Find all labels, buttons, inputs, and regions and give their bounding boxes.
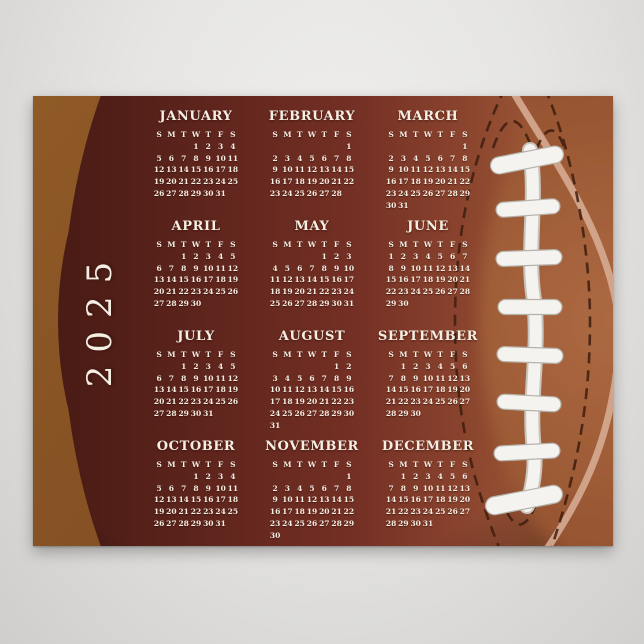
day-cell: 13 [153,384,165,396]
weekday-header: T [294,459,306,471]
day-cell: 26 [227,286,239,298]
day-cell: 3 [281,483,293,495]
day-cell: 29 [343,518,355,530]
weekday-header: T [202,239,214,251]
day-cell-empty [227,298,239,310]
day-cell-empty [459,518,471,530]
day-cell: 3 [397,153,409,165]
day-cell: 23 [397,286,409,298]
day-cell: 24 [422,506,434,518]
weekday-header: F [446,459,458,471]
day-cell: 3 [214,471,226,483]
day-cell: 2 [330,251,342,263]
weekday-header: T [434,349,446,361]
day-cell: 29 [385,298,397,310]
day-cell: 14 [385,494,397,506]
day-cell: 26 [422,188,434,200]
day-cell: 4 [434,361,446,373]
weekday-header: W [306,349,318,361]
weekday-header: T [434,129,446,141]
day-cell: 14 [330,494,342,506]
weekday-header: W [190,239,202,251]
weekday-header: W [422,459,434,471]
weekday-header: S [343,349,355,361]
day-cell: 10 [214,153,226,165]
lace-bar [496,249,562,266]
day-cell-empty [269,141,281,153]
day-cell: 1 [318,251,330,263]
day-cell: 15 [459,164,471,176]
day-cell-empty [434,141,446,153]
day-cell: 16 [202,494,214,506]
day-cell: 18 [294,176,306,188]
day-cell: 7 [178,483,190,495]
month-title: AUGUST [254,328,370,346]
month-day-grid: SMTWTFS123456789101112131415161718192021… [254,129,370,200]
day-cell-empty [459,200,471,212]
day-cell: 26 [446,396,458,408]
day-cell: 8 [318,263,330,275]
day-cell: 19 [422,176,434,188]
day-cell: 30 [397,298,409,310]
day-cell: 27 [294,298,306,310]
day-cell: 1 [459,141,471,153]
day-cell: 7 [330,483,342,495]
day-cell-empty [202,298,214,310]
month-day-grid: SMTWTFS123456789101112131415161718192021… [370,459,486,530]
day-cell-empty [434,200,446,212]
day-cell: 12 [227,263,239,275]
day-cell-empty [330,530,342,542]
day-cell: 7 [178,153,190,165]
day-cell: 5 [227,251,239,263]
weekday-header: S [227,349,239,361]
day-cell: 11 [214,263,226,275]
month-title: DECEMBER [370,438,486,456]
day-cell: 20 [318,176,330,188]
day-cell: 18 [214,384,226,396]
weekday-header: T [202,459,214,471]
day-cell: 13 [434,164,446,176]
day-cell: 31 [343,298,355,310]
day-cell: 25 [227,176,239,188]
day-cell: 30 [190,298,202,310]
day-cell: 17 [269,396,281,408]
day-cell-empty [446,298,458,310]
day-cell-empty [318,141,330,153]
day-cell: 4 [434,471,446,483]
day-cell-empty [306,251,318,263]
day-cell: 30 [202,188,214,200]
weekday-header: S [227,129,239,141]
day-cell: 12 [446,483,458,495]
day-cell: 13 [165,164,177,176]
day-cell: 9 [202,483,214,495]
month-block: OCTOBERSMTWTFS12345678910111213141516171… [138,434,254,544]
day-cell: 15 [178,274,190,286]
day-cell: 22 [330,396,342,408]
day-cell-empty [410,141,422,153]
day-cell: 20 [446,274,458,286]
day-cell: 1 [397,361,409,373]
day-cell-empty [294,530,306,542]
day-cell: 23 [330,286,342,298]
month-day-grid: SMTWTFS123456789101112131415161718192021… [138,129,254,200]
day-cell: 21 [446,176,458,188]
day-cell: 18 [269,286,281,298]
day-cell: 14 [385,384,397,396]
day-cell: 14 [330,164,342,176]
day-cell: 5 [306,153,318,165]
day-cell-empty [165,251,177,263]
day-cell: 15 [343,164,355,176]
weekday-header: M [165,129,177,141]
day-cell: 30 [410,518,422,530]
month-block: SEPTEMBERSMTWTFS123456789101112131415161… [370,324,486,434]
day-cell: 9 [190,373,202,385]
day-cell: 24 [269,408,281,420]
day-cell: 10 [214,483,226,495]
day-cell: 22 [178,286,190,298]
weekday-header: T [202,349,214,361]
day-cell-empty [446,141,458,153]
day-cell: 13 [318,164,330,176]
month-day-grid: SMTWTFS123456789101112131415161718192021… [254,349,370,432]
weekday-header: S [459,349,471,361]
day-cell: 21 [459,274,471,286]
day-cell: 18 [434,384,446,396]
day-cell: 25 [214,286,226,298]
weekday-header: T [318,459,330,471]
month-day-grid: SMTWTFS123456789101112131415161718192021… [254,459,370,542]
day-cell-empty [446,518,458,530]
day-cell: 6 [459,361,471,373]
day-cell: 9 [190,263,202,275]
weekday-header: S [227,239,239,251]
weekday-header: T [410,239,422,251]
day-cell: 28 [306,298,318,310]
day-cell: 26 [153,188,165,200]
day-cell-empty [385,361,397,373]
day-cell: 1 [190,141,202,153]
weekday-header: W [306,459,318,471]
day-cell-empty [330,420,342,432]
day-cell: 8 [190,153,202,165]
day-cell: 14 [165,274,177,286]
day-cell: 16 [202,164,214,176]
day-cell: 12 [294,384,306,396]
weekday-header: F [330,129,342,141]
day-cell: 22 [190,506,202,518]
day-cell: 30 [343,408,355,420]
day-cell: 15 [343,494,355,506]
day-cell: 6 [434,153,446,165]
month-day-grid: SMTWTFS123456789101112131415161718192021… [138,349,254,420]
day-cell-empty [281,141,293,153]
day-cell: 2 [269,153,281,165]
day-cell: 28 [178,518,190,530]
day-cell: 19 [446,494,458,506]
day-cell: 27 [165,188,177,200]
day-cell: 15 [385,274,397,286]
day-cell: 27 [459,396,471,408]
day-cell: 23 [410,396,422,408]
day-cell: 14 [446,164,458,176]
day-cell: 5 [422,153,434,165]
day-cell: 4 [294,483,306,495]
day-cell: 22 [459,176,471,188]
day-cell: 18 [434,494,446,506]
day-cell: 1 [190,471,202,483]
day-cell: 7 [446,153,458,165]
day-cell: 12 [153,164,165,176]
day-cell: 25 [422,286,434,298]
day-cell: 14 [459,263,471,275]
day-cell: 3 [343,251,355,263]
day-cell: 31 [202,408,214,420]
day-cell: 10 [202,373,214,385]
day-cell: 25 [294,188,306,200]
day-cell: 28 [318,408,330,420]
weekday-header: M [397,239,409,251]
calendar-grid: JANUARYSMTWTFS12345678910111213141516171… [138,104,486,544]
day-cell: 1 [343,141,355,153]
weekday-header: F [214,129,226,141]
day-cell: 30 [190,408,202,420]
weekday-header: W [190,129,202,141]
day-cell: 18 [410,176,422,188]
weekday-header: T [434,459,446,471]
day-cell: 28 [330,188,342,200]
month-title: NOVEMBER [254,438,370,456]
day-cell: 5 [153,483,165,495]
month-block: APRILSMTWTFS1234567891011121314151617181… [138,214,254,324]
day-cell-empty [410,200,422,212]
day-cell-empty [281,251,293,263]
day-cell: 28 [330,518,342,530]
day-cell: 31 [397,200,409,212]
weekday-header: S [385,349,397,361]
day-cell-empty [153,141,165,153]
day-cell-empty [294,361,306,373]
day-cell-empty [306,361,318,373]
month-title: FEBRUARY [254,108,370,126]
day-cell: 2 [385,153,397,165]
day-cell: 24 [281,188,293,200]
day-cell: 19 [153,176,165,188]
day-cell: 27 [318,188,330,200]
day-cell: 2 [202,141,214,153]
day-cell: 18 [294,506,306,518]
weekday-header: F [214,459,226,471]
day-cell: 11 [227,153,239,165]
day-cell: 4 [281,373,293,385]
day-cell: 27 [446,286,458,298]
day-cell-empty [153,361,165,373]
weekday-header: T [318,349,330,361]
day-cell: 3 [214,141,226,153]
month-block: JULYSMTWTFS12345678910111213141516171819… [138,324,254,434]
weekday-header: F [330,349,342,361]
day-cell: 24 [214,506,226,518]
month-day-grid: SMTWTFS123456789101112131415161718192021… [370,239,486,310]
day-cell: 2 [269,483,281,495]
lace-bar [498,300,562,315]
day-cell: 18 [214,274,226,286]
month-block: JUNESMTWTFS12345678910111213141516171819… [370,214,486,324]
day-cell: 22 [318,286,330,298]
day-cell: 16 [410,494,422,506]
day-cell: 6 [318,483,330,495]
weekday-header: S [153,459,165,471]
day-cell: 6 [153,373,165,385]
day-cell: 19 [281,286,293,298]
day-cell: 1 [178,361,190,373]
day-cell-empty [294,141,306,153]
day-cell: 6 [165,483,177,495]
day-cell: 18 [227,494,239,506]
day-cell: 16 [190,274,202,286]
month-block: JANUARYSMTWTFS12345678910111213141516171… [138,104,254,214]
day-cell: 31 [214,518,226,530]
month-title: JANUARY [138,108,254,126]
day-cell: 27 [165,518,177,530]
day-cell: 11 [422,263,434,275]
day-cell: 30 [202,518,214,530]
day-cell-empty [281,471,293,483]
day-cell: 13 [294,274,306,286]
day-cell: 11 [269,274,281,286]
day-cell: 5 [306,483,318,495]
day-cell-empty [165,361,177,373]
month-day-grid: SMTWTFS123456789101112131415161718192021… [254,239,370,310]
day-cell: 19 [434,274,446,286]
day-cell: 28 [385,518,397,530]
day-cell: 11 [410,164,422,176]
day-cell: 29 [330,408,342,420]
day-cell-empty [422,408,434,420]
day-cell: 9 [410,483,422,495]
day-cell: 3 [202,361,214,373]
weekday-header: S [343,459,355,471]
day-cell: 10 [397,164,409,176]
day-cell-empty [178,471,190,483]
day-cell: 20 [306,396,318,408]
day-cell: 4 [410,153,422,165]
day-cell: 4 [294,153,306,165]
month-title: MAY [254,218,370,236]
day-cell-empty [214,298,226,310]
weekday-header: W [190,349,202,361]
day-cell: 26 [153,518,165,530]
day-cell: 16 [330,274,342,286]
day-cell: 2 [410,471,422,483]
day-cell: 6 [446,251,458,263]
day-cell: 17 [397,176,409,188]
month-block: MAYSMTWTFS123456789101112131415161718192… [254,214,370,324]
wall-background: 2025 JANUARYSMTWTFS123456789101112131415… [0,0,644,644]
month-title: JUNE [370,218,486,236]
day-cell: 25 [410,188,422,200]
weekday-header: W [306,239,318,251]
day-cell: 29 [397,518,409,530]
day-cell-empty [306,420,318,432]
day-cell: 21 [330,176,342,188]
day-cell: 15 [330,384,342,396]
weekday-header: S [153,349,165,361]
day-cell-empty [269,251,281,263]
day-cell-empty [294,251,306,263]
day-cell: 22 [178,396,190,408]
day-cell: 2 [202,471,214,483]
day-cell: 4 [214,361,226,373]
day-cell: 8 [330,373,342,385]
day-cell: 23 [269,188,281,200]
weekday-header: T [410,459,422,471]
weekday-header: S [269,349,281,361]
day-cell: 19 [227,274,239,286]
day-cell-empty [214,408,226,420]
day-cell: 28 [165,298,177,310]
day-cell: 9 [269,164,281,176]
day-cell: 6 [153,263,165,275]
day-cell: 11 [434,373,446,385]
weekday-header: S [343,239,355,251]
day-cell: 27 [434,188,446,200]
day-cell: 13 [446,263,458,275]
day-cell: 1 [397,471,409,483]
month-title: JULY [138,328,254,346]
day-cell: 5 [227,361,239,373]
day-cell: 1 [343,471,355,483]
weekday-header: M [281,459,293,471]
day-cell: 20 [459,494,471,506]
day-cell: 31 [269,420,281,432]
weekday-header: F [330,459,342,471]
day-cell: 23 [343,396,355,408]
weekday-header: S [459,129,471,141]
day-cell: 25 [294,518,306,530]
day-cell: 11 [294,164,306,176]
day-cell: 4 [269,263,281,275]
day-cell: 15 [178,384,190,396]
day-cell: 26 [306,518,318,530]
day-cell: 26 [227,396,239,408]
weekday-header: T [318,239,330,251]
day-cell: 16 [410,384,422,396]
day-cell: 30 [410,408,422,420]
month-block: MARCHSMTWTFS1234567891011121314151617181… [370,104,486,214]
day-cell: 13 [306,384,318,396]
weekday-header: M [165,349,177,361]
weekday-header: T [434,239,446,251]
day-cell: 21 [330,506,342,518]
month-block: NOVEMBERSMTWTFS1234567891011121314151617… [254,434,370,544]
weekday-header: S [343,129,355,141]
day-cell: 3 [269,373,281,385]
day-cell: 11 [434,483,446,495]
weekday-header: F [446,349,458,361]
weekday-header: S [269,129,281,141]
day-cell-empty [281,530,293,542]
day-cell: 9 [397,263,409,275]
day-cell: 8 [178,373,190,385]
day-cell: 9 [343,373,355,385]
day-cell: 12 [446,373,458,385]
day-cell: 8 [397,373,409,385]
football-calendar-poster: 2025 JANUARYSMTWTFS123456789101112131415… [33,96,613,546]
day-cell: 16 [397,274,409,286]
